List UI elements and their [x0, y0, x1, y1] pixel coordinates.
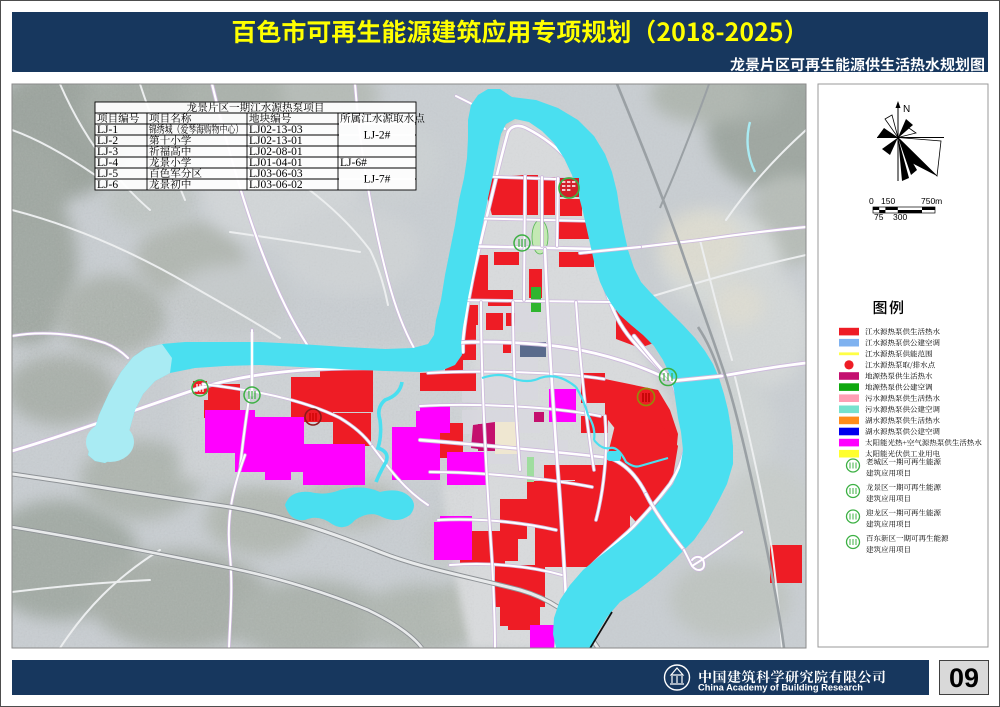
svg-text:150: 150	[881, 196, 895, 206]
svg-text:China Academy of Building Rese: China Academy of Building Research	[698, 683, 863, 693]
svg-text:09: 09	[949, 663, 979, 693]
svg-text:75: 75	[874, 212, 884, 222]
svg-text:0: 0	[869, 196, 874, 206]
svg-text:LJ03-06-02: LJ03-06-02	[249, 179, 303, 191]
svg-text:LJ-6: LJ-6	[97, 179, 118, 191]
svg-text:LJ-6#: LJ-6#	[340, 157, 367, 169]
svg-text:750m: 750m	[921, 196, 942, 206]
svg-text:LJ-7#: LJ-7#	[364, 173, 391, 185]
svg-text:LJ-2#: LJ-2#	[364, 130, 391, 142]
svg-text:300: 300	[893, 212, 907, 222]
svg-text:N: N	[903, 104, 910, 115]
